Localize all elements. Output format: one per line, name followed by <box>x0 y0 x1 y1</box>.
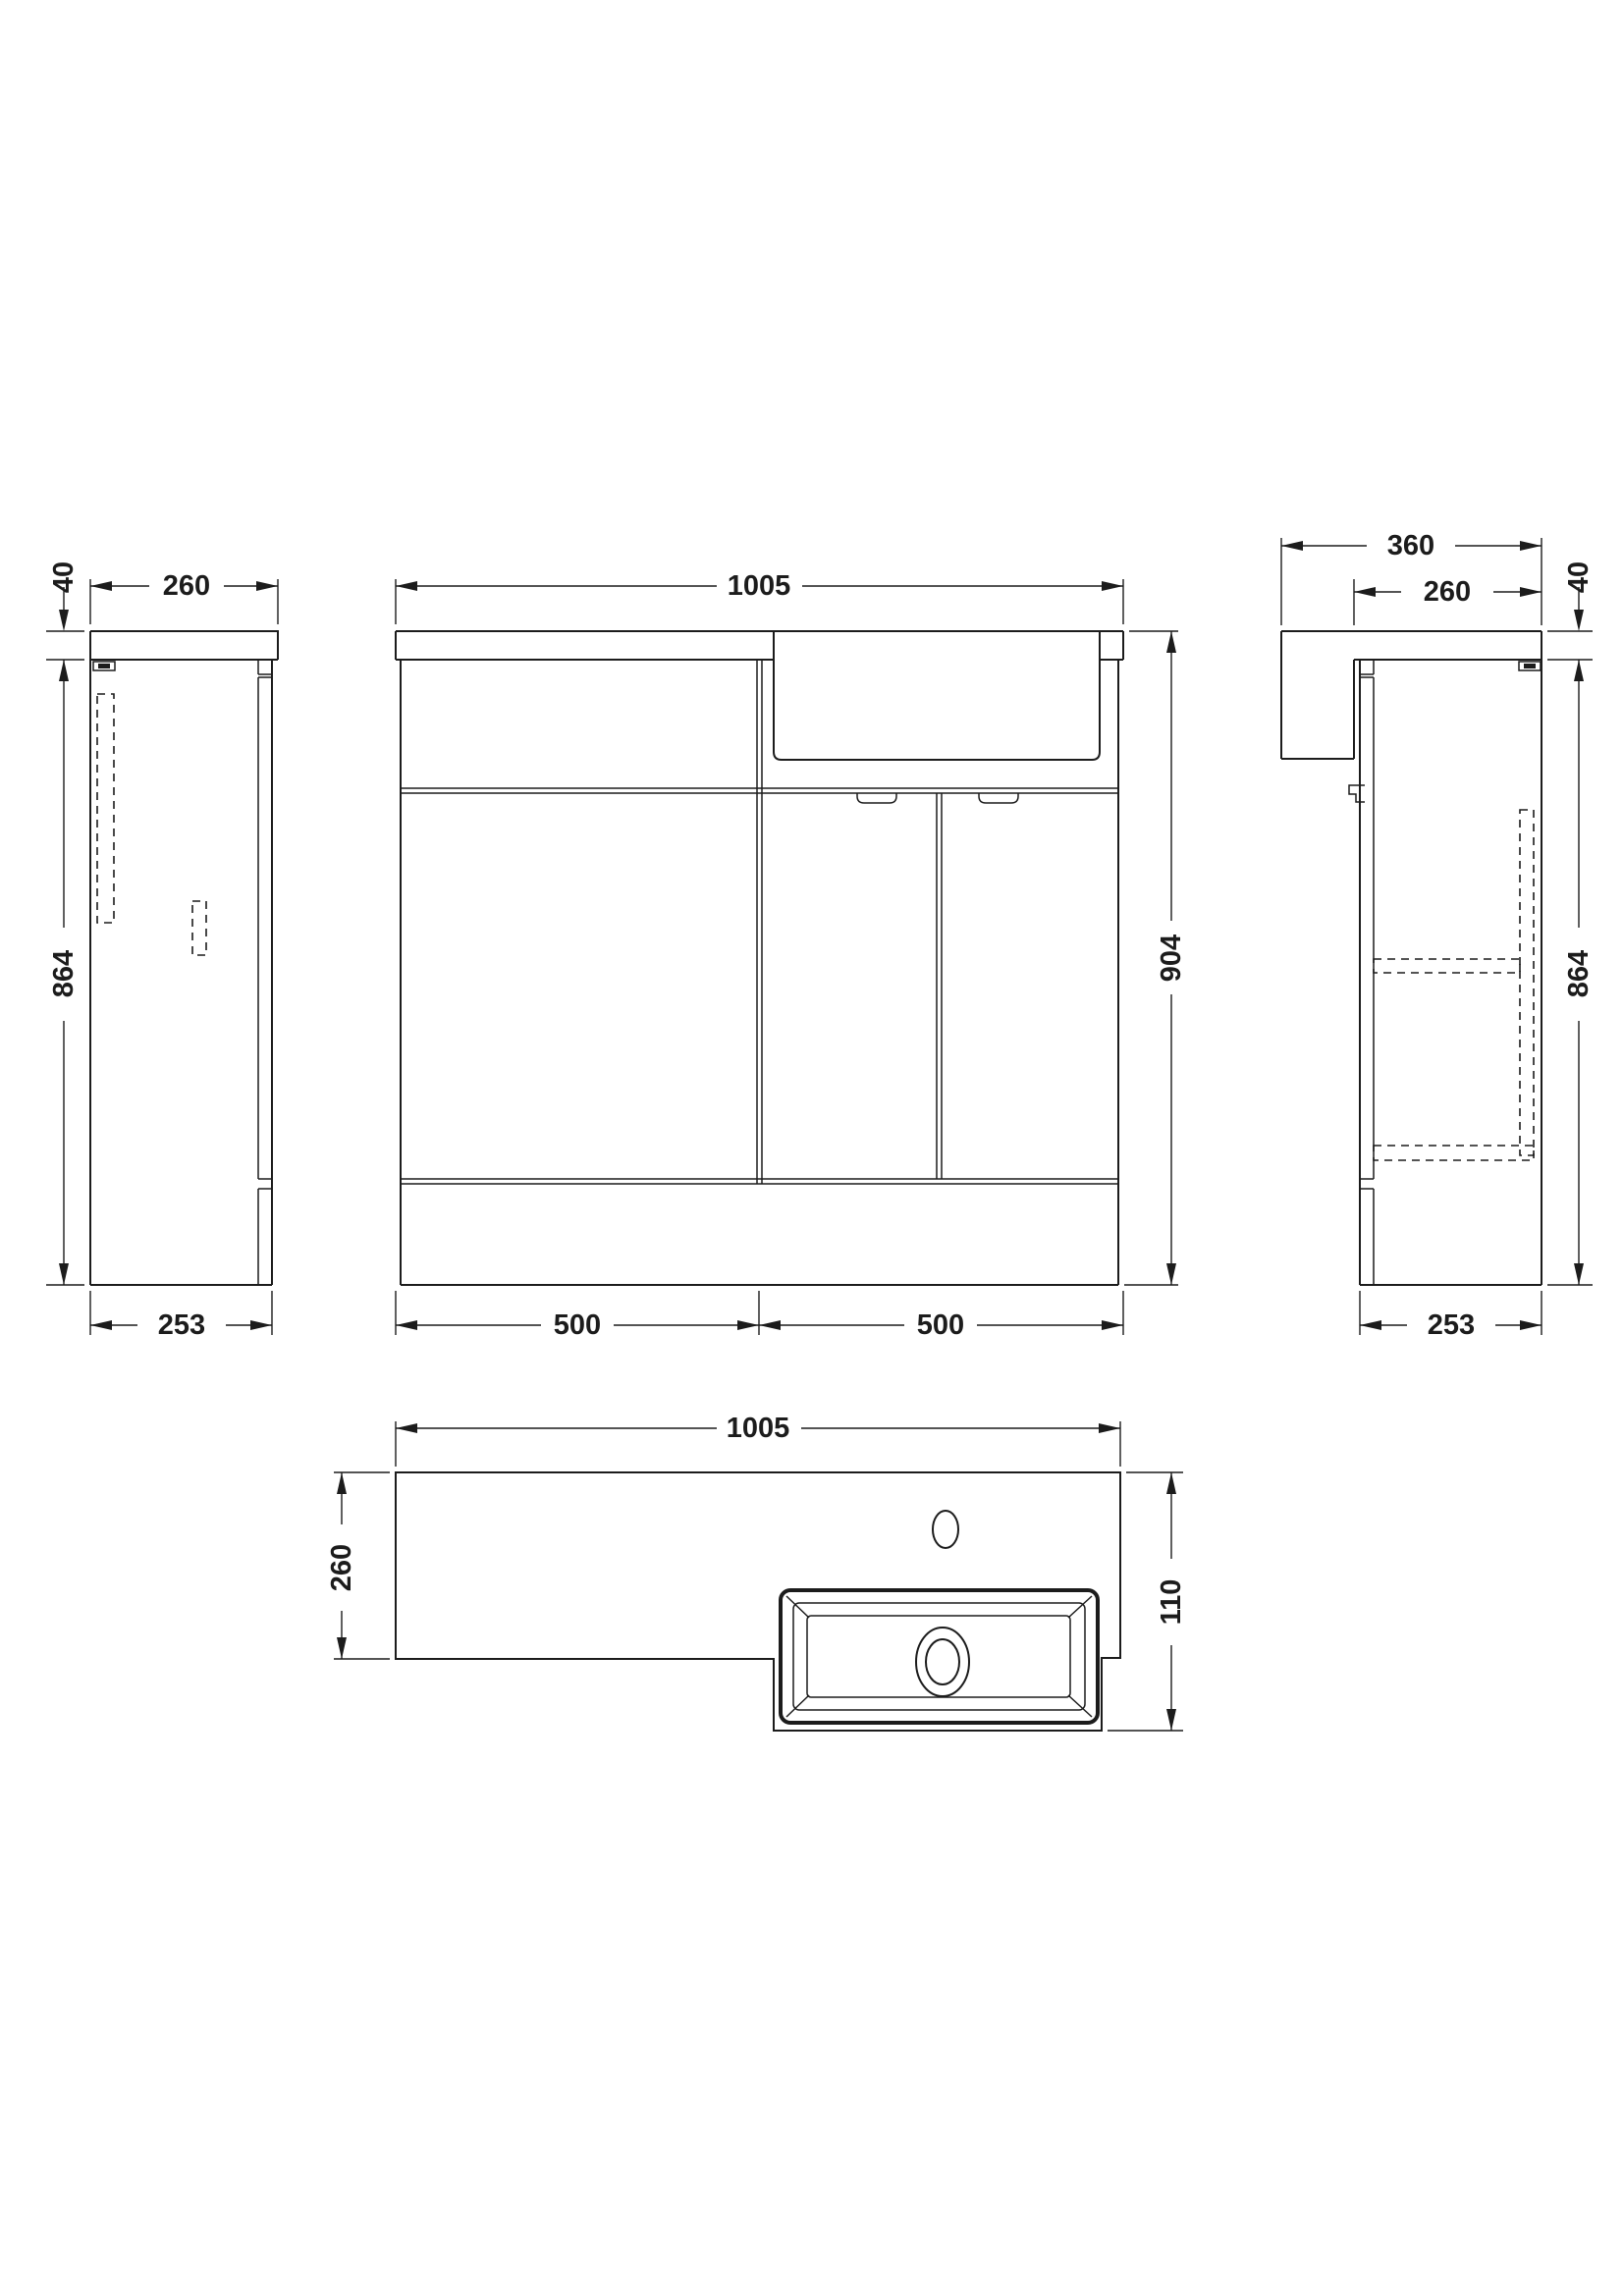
right-view-dimensions: 360 260 40 864 253 <box>1281 530 1595 1341</box>
dim-front-left-section: 500 <box>554 1309 601 1341</box>
right-view-fixing-clip <box>1519 662 1541 670</box>
right-view-hidden-bottom-shelf <box>1374 1146 1534 1160</box>
dim-plan-overall-width: 1005 <box>727 1413 790 1444</box>
dim-right-cabinet-depth: 253 <box>1428 1309 1475 1341</box>
front-view <box>396 631 1123 1285</box>
door-handle-recess-left <box>857 793 896 803</box>
dim-left-cabinet-depth: 253 <box>158 1309 205 1341</box>
dim-left-cabinet-height: 864 <box>48 950 80 997</box>
left-side-view <box>90 631 278 1285</box>
dim-plan-basin-projection: 110 <box>1156 1579 1187 1626</box>
front-basin-recess <box>774 631 1100 760</box>
technical-drawing-page: 40 260 864 253 <box>0 0 1623 2296</box>
dim-front-right-section: 500 <box>917 1309 964 1341</box>
left-view-hidden-fixing <box>192 901 206 955</box>
right-side-view <box>1281 631 1542 1285</box>
left-view-fixing-clip <box>93 662 115 670</box>
dim-front-overall-height: 904 <box>1156 934 1187 982</box>
left-view-dimensions: 40 260 864 253 <box>46 561 278 1341</box>
vanity-unit-dimension-drawing: 40 260 864 253 <box>0 0 1623 2296</box>
dim-right-cabinet-height: 864 <box>1563 950 1595 997</box>
dim-left-worktop-thickness: 40 <box>48 561 80 593</box>
right-view-hidden-back-panel <box>1520 810 1534 1155</box>
dim-right-overall-depth: 360 <box>1387 530 1434 561</box>
dim-right-worktop-depth: 260 <box>1424 576 1471 608</box>
left-view-hidden-bracket <box>97 694 114 923</box>
dim-right-worktop-thickness: 40 <box>1563 561 1595 593</box>
door-handle-recess-right <box>979 793 1018 803</box>
plan-view <box>396 1472 1120 1731</box>
dim-plan-worktop-depth: 260 <box>326 1544 357 1591</box>
right-view-handle-profile <box>1349 785 1365 802</box>
right-view-hidden-shelf <box>1374 959 1520 973</box>
plan-tap-hole <box>933 1511 958 1548</box>
plan-basin-rim <box>781 1590 1098 1723</box>
dim-left-worktop-depth: 260 <box>163 570 210 602</box>
dim-front-overall-width: 1005 <box>728 570 791 602</box>
front-view-dimensions: 1005 904 500 500 <box>396 570 1187 1341</box>
right-view-basin-profile <box>1281 631 1354 759</box>
